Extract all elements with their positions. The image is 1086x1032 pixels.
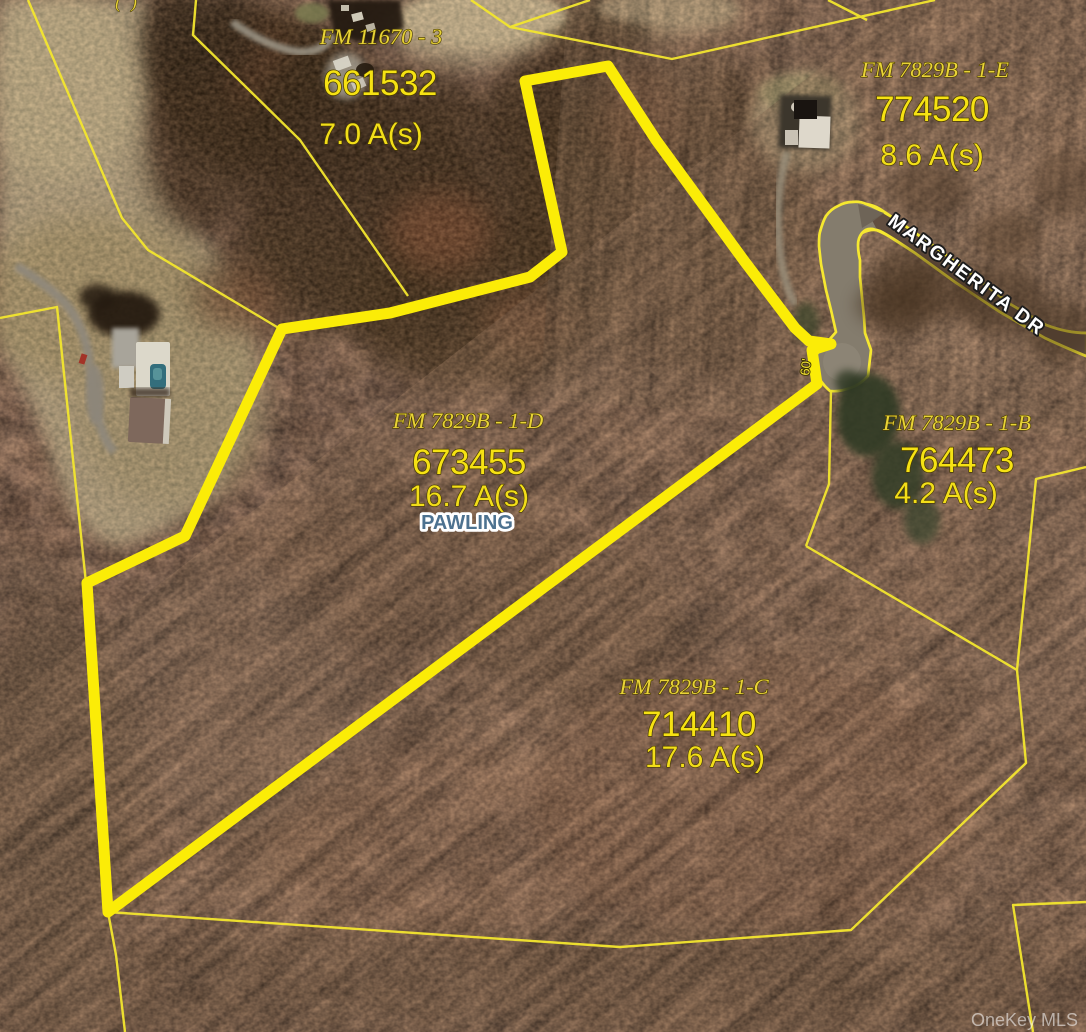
- svg-text:673455: 673455: [412, 443, 526, 482]
- svg-text:( ): ( ): [115, 0, 137, 12]
- svg-text:661532: 661532: [323, 64, 437, 103]
- svg-text:764473: 764473: [900, 441, 1014, 480]
- svg-text:PAWLING: PAWLING: [421, 512, 513, 534]
- svg-text:16.7 A(s): 16.7 A(s): [409, 480, 529, 513]
- svg-text:17.6 A(s): 17.6 A(s): [645, 741, 765, 774]
- svg-text:60': 60': [797, 358, 814, 377]
- svg-text:FM 7829B - 1-D: FM 7829B - 1-D: [392, 408, 544, 433]
- svg-text:7.0 A(s): 7.0 A(s): [319, 118, 422, 151]
- svg-text:714410: 714410: [642, 705, 756, 744]
- svg-text:FM 7829B - 1-E: FM 7829B - 1-E: [860, 57, 1009, 82]
- svg-text:774520: 774520: [875, 90, 989, 129]
- svg-text:FM 7829B - 1-C: FM 7829B - 1-C: [618, 674, 769, 699]
- svg-text:FM 11670 - 3: FM 11670 - 3: [319, 24, 443, 49]
- svg-text:OneKey MLS: OneKey MLS: [971, 1010, 1078, 1030]
- svg-text:FM 7829B - 1-B: FM 7829B - 1-B: [882, 410, 1031, 435]
- svg-text:4.2 A(s): 4.2 A(s): [894, 477, 997, 510]
- svg-text:8.6 A(s): 8.6 A(s): [880, 139, 983, 172]
